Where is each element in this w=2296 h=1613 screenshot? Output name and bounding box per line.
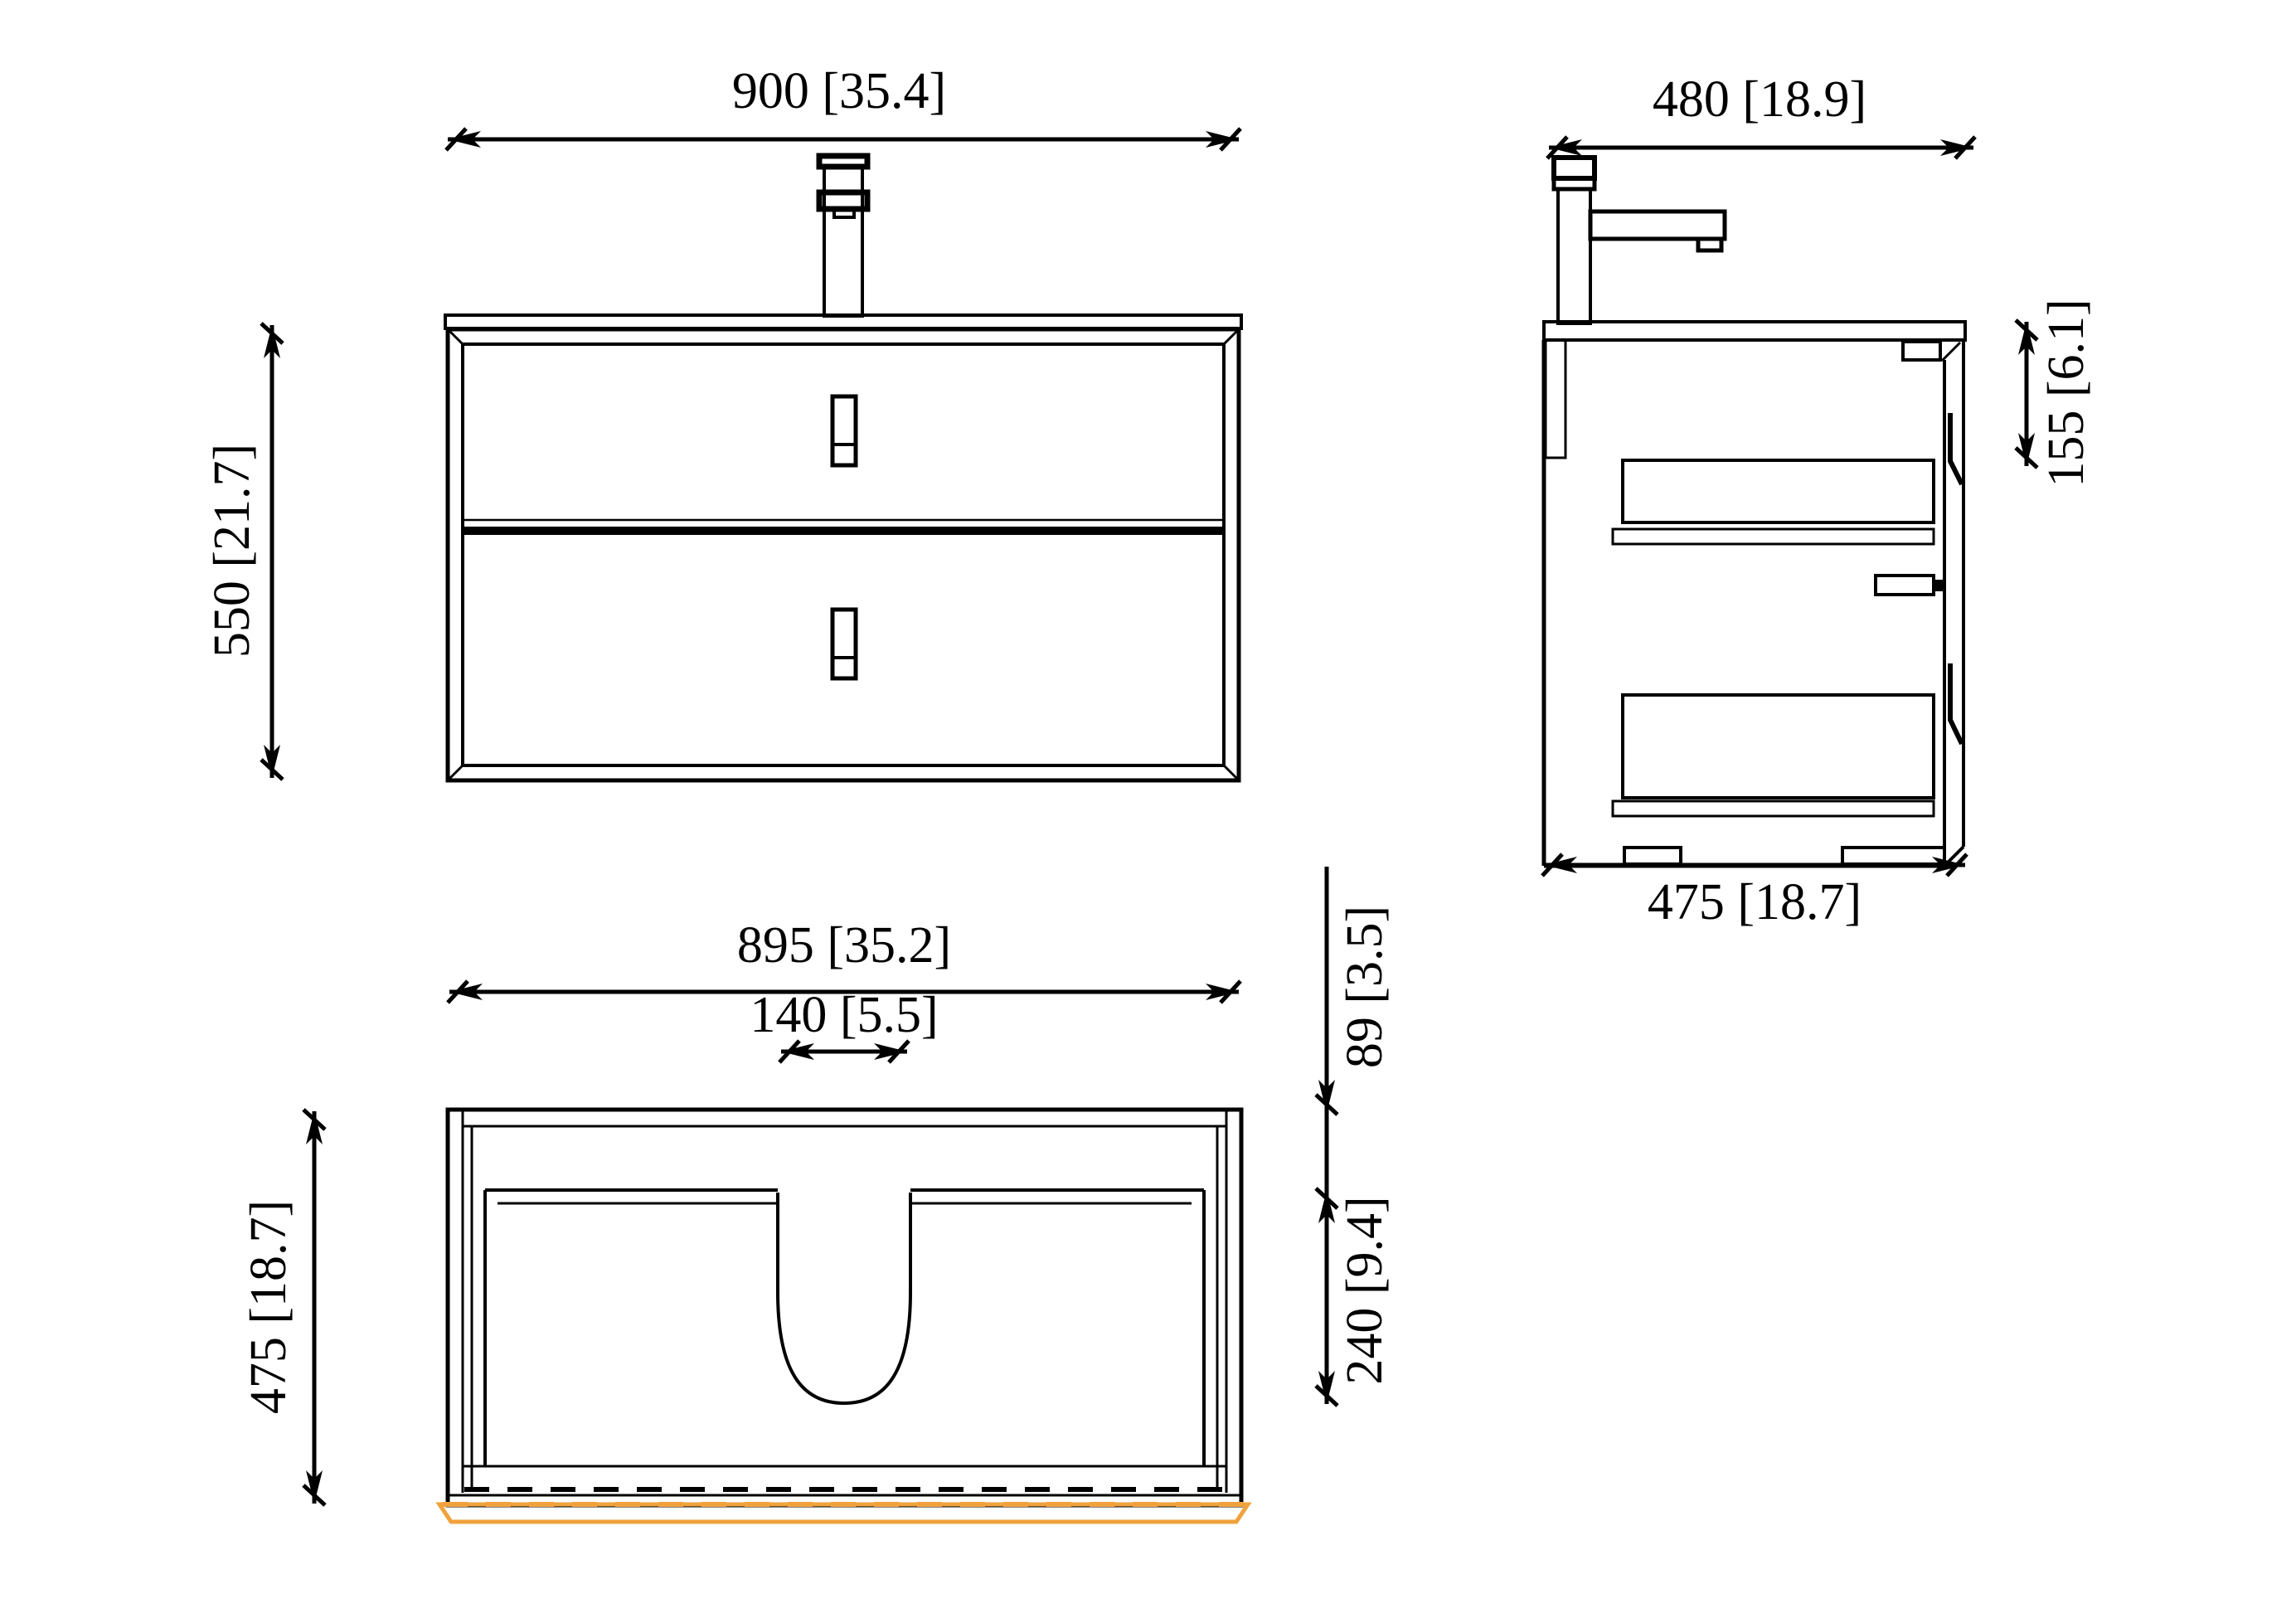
dim-front-width-label: 900 [35.4] <box>732 63 946 119</box>
dim-plan-cutout: 140 [5.5] <box>750 987 938 1052</box>
dim-side-depth: 475 [18.7] <box>1544 865 1965 930</box>
dim-plan-width: 895 [35.2] <box>449 917 1239 992</box>
drawer-stop-tab <box>1934 580 1946 591</box>
drawer-slide-lower <box>1613 801 1934 816</box>
dim-front-height: 550 [21.7] <box>204 325 272 778</box>
u-shaped-drain-cutout <box>778 1193 910 1403</box>
faucet-side-cap <box>1554 158 1595 178</box>
dim-plan-back-offset: 89 [3.5] 240 [9.4] <box>1327 867 1393 1404</box>
side-handle-upper <box>1950 413 1962 484</box>
dim-plan-back-offset-label: 89 [3.5] <box>1337 906 1393 1068</box>
dim-plan-depth: 475 [18.7] <box>240 1111 314 1504</box>
drawer-stop-block <box>1876 576 1934 595</box>
dim-plan-width-label: 895 [35.2] <box>737 917 951 974</box>
drawer-box-lower <box>1613 695 1934 816</box>
dim-side-handle-offset-label: 155 [6.1] <box>2038 299 2095 487</box>
drawer-handle-lower <box>832 610 856 678</box>
faucet-spout <box>1590 211 1725 239</box>
top-front-chamfer <box>1942 343 1960 361</box>
chamfer-bottom-right <box>1224 765 1239 780</box>
basin-cutout <box>448 1190 1241 1495</box>
front-view: 900 [35.4] 550 [21.7] <box>204 63 1241 780</box>
faucet-front <box>819 156 867 316</box>
dim-side-width: 480 [18.9] <box>1549 71 1973 148</box>
cabinet-foot-back <box>1624 848 1681 864</box>
dim-plan-depth-label: 475 [18.7] <box>240 1200 297 1414</box>
faucet-notch <box>834 209 854 217</box>
dim-side-depth-label: 475 [18.7] <box>1648 874 1862 930</box>
countertop-side <box>1544 322 1965 340</box>
cabinet-side-carcass <box>1544 340 1963 866</box>
faucet-side-body <box>1558 189 1590 323</box>
drawer-box-upper <box>1613 460 1934 544</box>
dim-front-height-label: 550 [21.7] <box>204 444 260 658</box>
plan-view: 895 [35.2] 140 [5.5] 475 [18.7] 89 [3.5]… <box>240 867 1393 1522</box>
cabinet-foot-front <box>1842 848 1944 864</box>
vanity-technical-drawing: 900 [35.4] 550 [21.7] <box>0 0 2296 1613</box>
dim-side-handle-offset: 155 [6.1] <box>2027 299 2095 487</box>
faucet-side <box>1554 158 1725 323</box>
faucet-handle-band <box>819 192 867 209</box>
chamfer-top-right <box>1224 329 1239 344</box>
chamfer-top-left <box>448 329 463 344</box>
drawer-handle-upper <box>832 396 856 465</box>
chamfer-bottom-left <box>448 765 463 780</box>
dim-plan-cutout-label: 140 [5.5] <box>750 987 938 1043</box>
side-handle-lower <box>1950 663 1962 744</box>
drawer-divider <box>463 520 1224 531</box>
drawer-slide-upper <box>1613 529 1934 544</box>
side-view: 480 [18.9] 155 [6.1] 475 [18.7] <box>1544 71 2095 930</box>
top-front-rail <box>1903 342 1940 360</box>
dim-front-width: 900 [35.4] <box>448 63 1239 139</box>
technical-drawing-page: 900 [35.4] 550 [21.7] <box>0 0 2296 1613</box>
dim-side-width-label: 480 [18.9] <box>1653 71 1866 128</box>
plan-outline <box>448 1110 1241 1505</box>
dim-plan-basin-depth-label: 240 [9.4] <box>1337 1196 1393 1384</box>
faucet-spout-tip <box>1698 239 1721 250</box>
faucet-body <box>824 166 862 316</box>
basin-back-apron <box>1546 340 1565 458</box>
